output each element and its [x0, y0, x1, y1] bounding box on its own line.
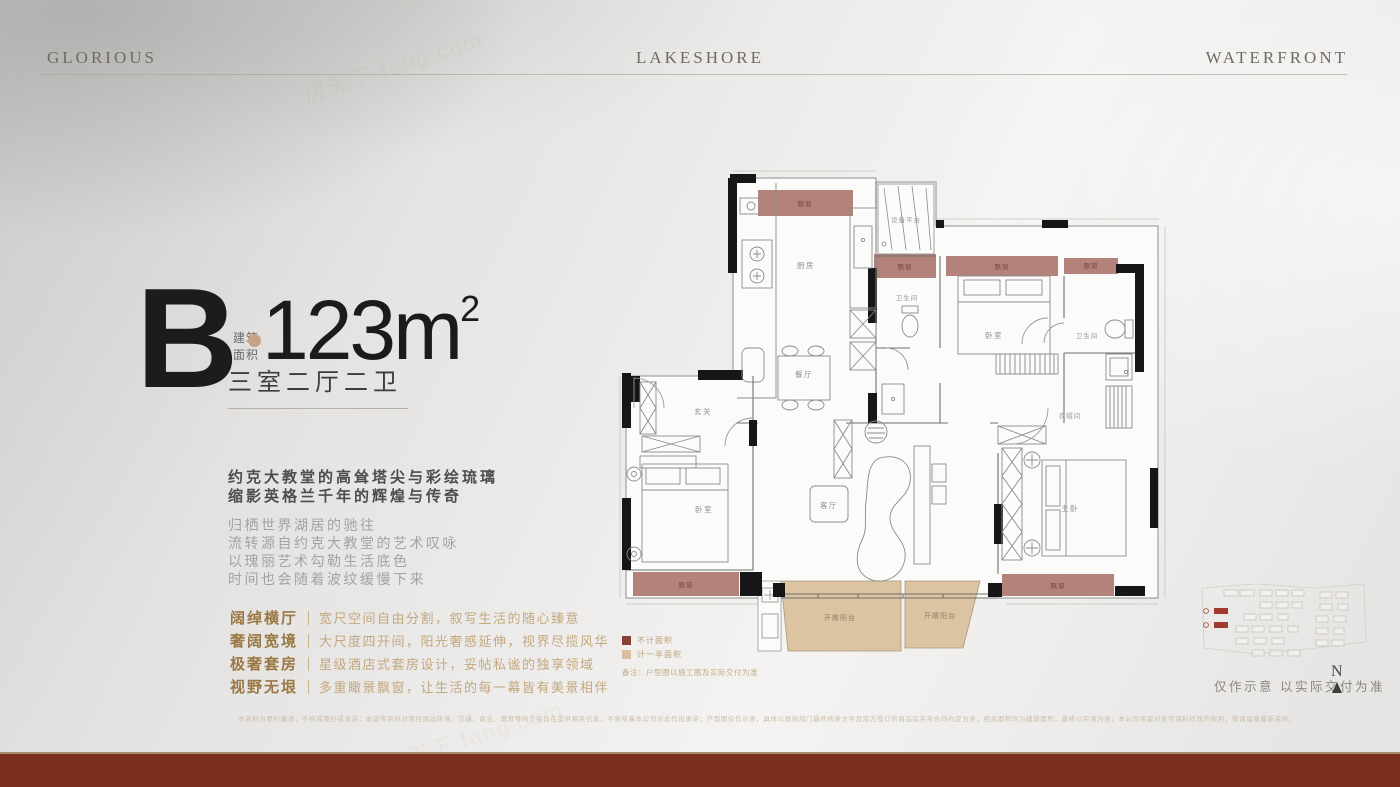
feature-row: 视野无垠 多重瞰景飘窗，让生活的每一幕皆有美景相伴	[230, 675, 609, 698]
bay-label: 飘窗	[679, 580, 694, 589]
feature-divider	[308, 680, 309, 694]
room-label-kitchen: 厨房	[797, 260, 815, 270]
bay-label: 飘窗	[898, 262, 913, 271]
intro-light-line: 归栖世界湖居的驰往	[228, 516, 498, 534]
site-plan	[1196, 582, 1368, 664]
floorplan-footprint	[626, 178, 1158, 598]
legend-label: 不计面积	[637, 635, 673, 646]
feature-row: 奢阔宽境 大尺度四开间，阳光奢感延伸，视界尽揽风华	[230, 629, 609, 652]
feature-divider	[308, 657, 309, 671]
legend-row: 不计面积	[622, 633, 758, 647]
bay-label: 飘窗	[1051, 581, 1066, 590]
feature-divider	[308, 611, 309, 625]
legend-swatch-tan	[622, 650, 631, 659]
unit-layout: 三室二厅二卫	[228, 362, 408, 409]
feature-list: 阔绰横厅 宽尺空间自由分割，叙写生活的随心臻意 奢阔宽境 大尺度四开间，阳光奢感…	[230, 606, 609, 698]
site-plan-highlighted-buildings	[1204, 608, 1228, 628]
room-label-balcony2: 开敞阳台	[924, 611, 956, 620]
legend-note: 备注：户型图以施工图及实际交付为准	[622, 667, 758, 678]
bay-label: 飘窗	[995, 262, 1010, 271]
room-label-dining: 餐厅	[795, 370, 813, 379]
room-label-bath2: 卫生间	[1076, 331, 1099, 340]
feature-desc: 星级酒店式套房设计，妥帖私谧的独享领域	[319, 654, 595, 673]
intro-light-line: 以瑰丽艺术勾勒生活底色	[228, 552, 498, 570]
feature-row: 阔绰横厅 宽尺空间自由分割，叙写生活的随心臻意	[230, 606, 609, 629]
plan-legend: 不计面积 计一半面积 备注：户型图以施工图及实际交付为准	[622, 633, 758, 678]
intro-block: 约克大教堂的高耸塔尖与彩绘琉璃 缩影英格兰千年的辉煌与传奇 归栖世界湖居的驰往 …	[228, 468, 498, 588]
unit-letter: B	[136, 268, 239, 410]
intro-light-line: 流转源自约克大教堂的艺术叹咏	[228, 534, 498, 552]
compass-arrow-icon	[1332, 682, 1342, 693]
footer-maroon-bar	[0, 754, 1400, 787]
legend-swatch-red	[622, 636, 631, 645]
north-compass: N	[1331, 664, 1343, 693]
intro-bold-line: 缩影英格兰千年的辉煌与传奇	[228, 487, 498, 506]
compass-n-label: N	[1331, 664, 1343, 680]
bay-label: 飘窗	[1084, 261, 1099, 270]
accent-dot	[248, 334, 261, 347]
intro-light-line: 时间也会随着波纹缓慢下来	[228, 570, 498, 588]
room-label-bedroom2: 卧室	[985, 330, 1003, 340]
room-label-bath1: 卫生间	[896, 293, 919, 302]
site-plan-note: 仅作示意 以实际交付为准	[1214, 676, 1385, 695]
area-superscript: 2	[460, 288, 480, 329]
room-label-living: 客厅	[820, 500, 838, 510]
header-lakeshore: LAKESHORE	[0, 48, 1400, 68]
floorplan: 飘窗 飘窗 飘窗 飘窗 飘窗 飘窗	[618, 168, 1178, 668]
room-label-entry: 玄关	[694, 406, 712, 416]
feature-desc: 大尺度四开间，阳光奢感延伸，视界尽揽风华	[319, 631, 609, 650]
feature-title: 阔绰横厅	[230, 607, 298, 628]
room-label-closet: 衣帽间	[1059, 411, 1082, 420]
room-label-balcony1: 开敞阳台	[824, 613, 856, 622]
intro-bold-line: 约克大教堂的高耸塔尖与彩绘琉璃	[228, 468, 498, 487]
area-value: 123m2	[262, 288, 480, 372]
legend-row: 计一半面积	[622, 647, 758, 661]
header-divider	[40, 74, 1347, 75]
feature-divider	[308, 634, 309, 648]
bay-label: 飘窗	[798, 199, 813, 208]
feature-desc: 宽尺空间自由分割，叙写生活的随心臻意	[319, 608, 580, 627]
feature-row: 极奢套房 星级酒店式套房设计，妥帖私谧的独享领域	[230, 652, 609, 675]
feature-title: 奢阔宽境	[230, 630, 298, 651]
feature-desc: 多重瞰景飘窗，让生活的每一幕皆有美景相伴	[319, 677, 609, 696]
feature-title: 视野无垠	[230, 676, 298, 697]
header-waterfront: WATERFRONT	[1206, 48, 1348, 68]
feature-title: 极奢套房	[230, 653, 298, 674]
legend-label: 计一半面积	[637, 649, 682, 660]
disclaimer-line: 本资料为要约邀请，不构成要约或承诺；本宣传资料对项目周边环境、交通、商业、教育等…	[238, 713, 1396, 723]
room-label-master: 主卧	[1061, 503, 1079, 513]
room-label-equipment: 设备平台	[891, 215, 921, 224]
room-label-bedroom1: 卧室	[695, 504, 713, 514]
